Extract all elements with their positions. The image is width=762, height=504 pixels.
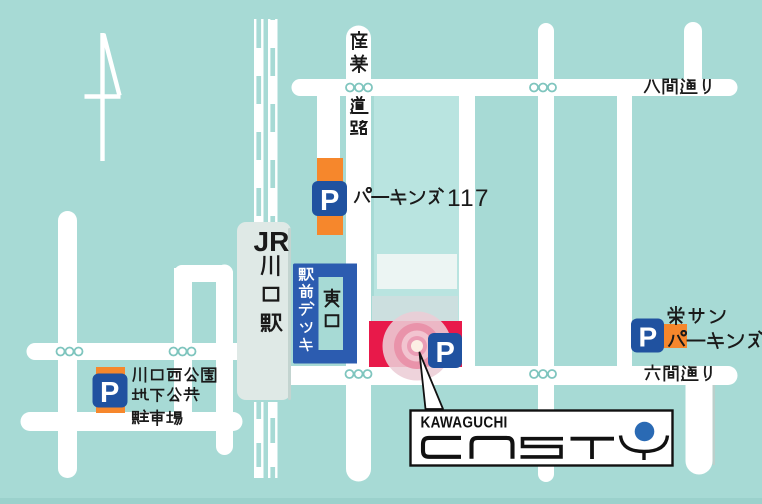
svg-text:P: P bbox=[639, 322, 658, 353]
svg-text:P: P bbox=[100, 377, 119, 409]
svg-text:117: 117 bbox=[447, 185, 490, 212]
svg-text:P: P bbox=[320, 185, 339, 217]
svg-text:JR: JR bbox=[254, 226, 290, 257]
svg-text:P: P bbox=[436, 337, 455, 369]
svg-text:KAWAGUCHI: KAWAGUCHI bbox=[421, 415, 508, 432]
